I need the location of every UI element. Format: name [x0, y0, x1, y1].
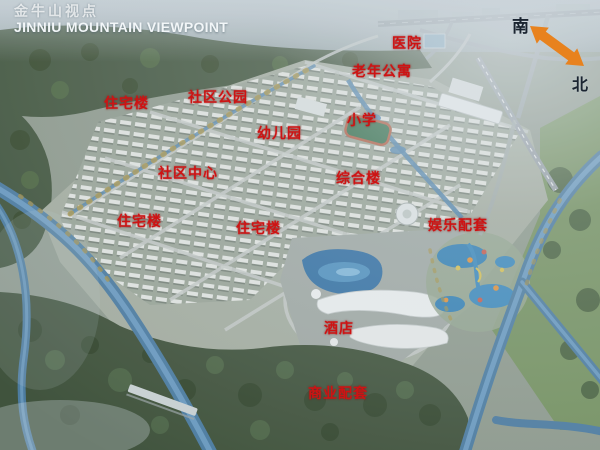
map-label-entertainment: 娱乐配套: [428, 215, 488, 235]
map-label-residential-2: 住宅楼: [117, 211, 162, 231]
map-label-community-center: 社区中心: [158, 163, 218, 183]
aerial-render: [0, 0, 600, 450]
mist-overlay: [0, 0, 600, 450]
map-label-hotel: 酒店: [324, 318, 354, 338]
map-label-commercial: 商业配套: [308, 383, 368, 403]
map-label-elderly-apartments: 老年公寓: [352, 61, 412, 81]
compass-arrow-icon: [522, 16, 592, 76]
map-label-residential-1: 住宅楼: [104, 93, 149, 113]
map-label-elementary-school: 小学: [347, 110, 377, 130]
map-label-hospital: 医院: [392, 33, 422, 53]
map-label-kindergarten: 幼儿园: [257, 123, 302, 143]
double-arrow-shape: [530, 26, 584, 66]
map-label-residential-3: 住宅楼: [236, 218, 281, 238]
map-label-comprehensive-bldg: 综合楼: [336, 168, 381, 188]
compass-north-label: 北: [572, 71, 588, 95]
map-label-community-park: 社区公园: [188, 87, 248, 107]
masterplan-image: 金牛山视点 JINNIU MOUNTAIN VIEWPOINT 医院 老年公寓 …: [0, 0, 600, 450]
